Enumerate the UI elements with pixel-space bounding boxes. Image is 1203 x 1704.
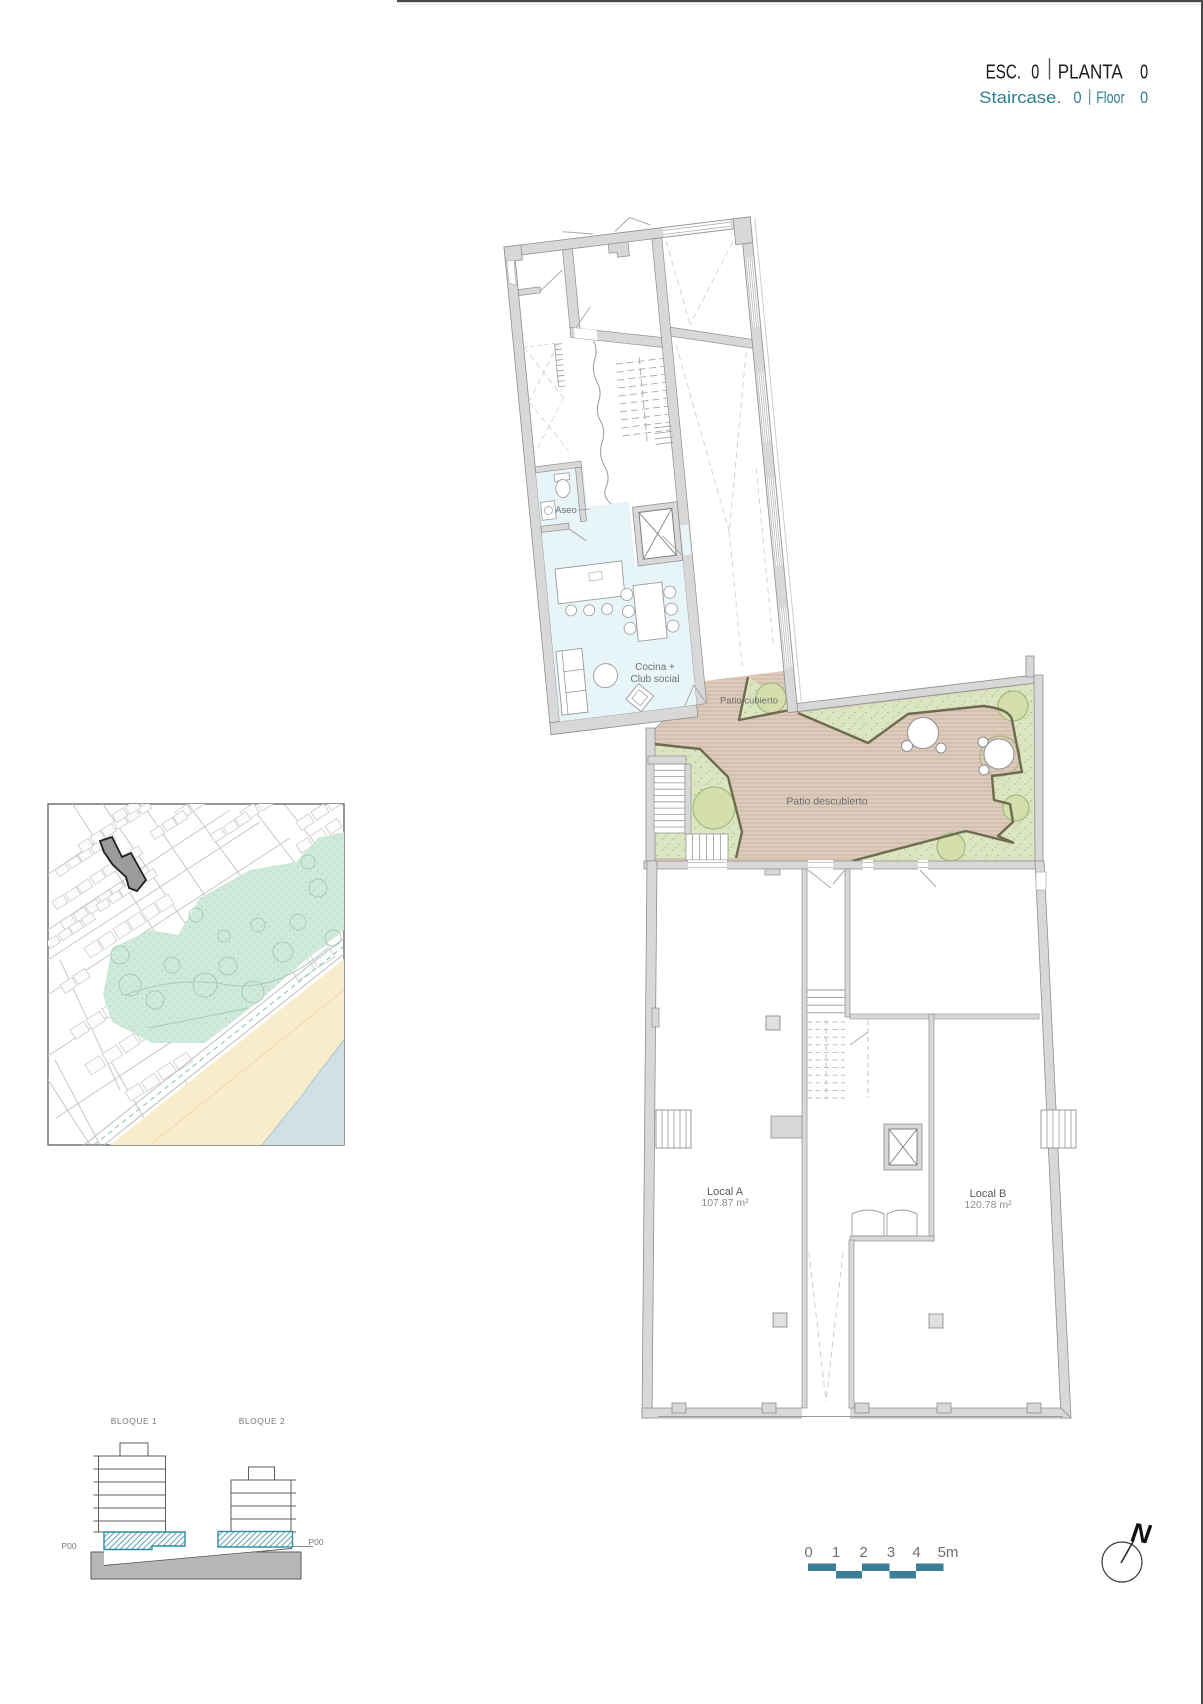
svg-text:120.78 m²: 120.78 m² bbox=[964, 1199, 1012, 1211]
svg-text:0: 0 bbox=[804, 1544, 812, 1561]
svg-text:ESC.: ESC. bbox=[986, 61, 1022, 83]
svg-text:0: 0 bbox=[1140, 61, 1148, 83]
svg-text:Aseo: Aseo bbox=[555, 505, 577, 516]
svg-text:Club social: Club social bbox=[631, 674, 680, 685]
svg-text:Floor: Floor bbox=[1096, 88, 1125, 107]
svg-text:Patio descubierto: Patio descubierto bbox=[786, 796, 867, 808]
svg-text:0: 0 bbox=[1140, 88, 1148, 107]
svg-text:4: 4 bbox=[912, 1544, 920, 1561]
svg-text:BLOQUE 2: BLOQUE 2 bbox=[239, 1416, 286, 1426]
svg-text:P00: P00 bbox=[61, 1541, 76, 1551]
svg-text:Cocina +: Cocina + bbox=[635, 662, 675, 673]
svg-text:P00: P00 bbox=[308, 1537, 323, 1547]
svg-text:107.87 m²: 107.87 m² bbox=[701, 1197, 749, 1209]
svg-text:0: 0 bbox=[1031, 61, 1039, 83]
svg-text:Patio cubierto: Patio cubierto bbox=[720, 696, 778, 707]
svg-text:PLANTA: PLANTA bbox=[1058, 61, 1124, 83]
svg-text:3: 3 bbox=[887, 1544, 895, 1561]
svg-text:BLOQUE 1: BLOQUE 1 bbox=[111, 1416, 158, 1426]
svg-text:1: 1 bbox=[832, 1544, 840, 1561]
svg-text:2: 2 bbox=[859, 1544, 867, 1561]
svg-text:Staircase.: Staircase. bbox=[979, 88, 1061, 107]
svg-text:0: 0 bbox=[1073, 88, 1081, 107]
svg-text:5m: 5m bbox=[938, 1544, 959, 1561]
